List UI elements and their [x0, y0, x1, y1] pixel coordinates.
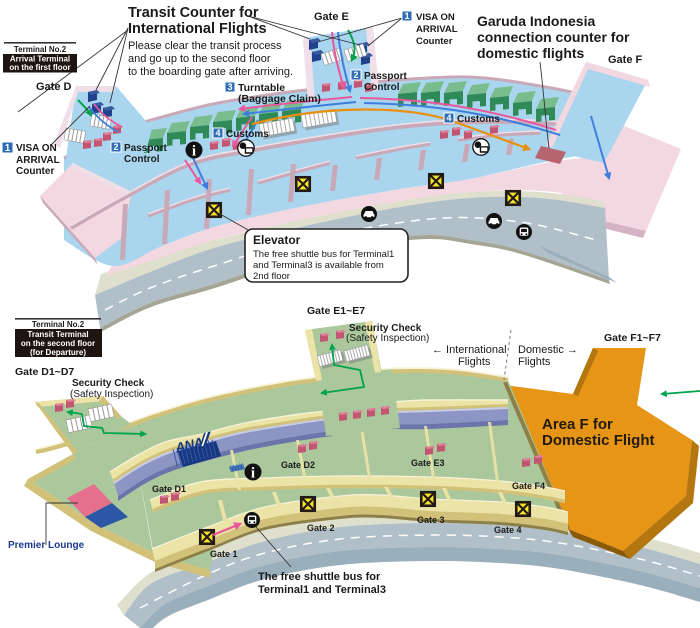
svg-text:Terminal No.2: Terminal No.2 — [32, 320, 85, 329]
svg-text:The free shuttle bus for: The free shuttle bus for — [258, 571, 381, 583]
svg-text:Counter: Counter — [416, 36, 453, 47]
svg-text:Flights: Flights — [518, 356, 551, 368]
svg-text:(for Departure): (for Departure) — [30, 348, 86, 357]
svg-text:Gate 4: Gate 4 — [494, 525, 522, 535]
svg-text:2: 2 — [353, 70, 358, 80]
svg-text:domestic flights: domestic flights — [477, 45, 585, 61]
svg-text:and go up to the second floor: and go up to the second floor — [128, 53, 271, 65]
svg-text:Counter: Counter — [16, 166, 54, 177]
svg-text:(Safety Inspection): (Safety Inspection) — [346, 333, 429, 344]
svg-text:Terminal1 and Terminal3: Terminal1 and Terminal3 — [258, 584, 386, 596]
svg-text:(Baggage Claim): (Baggage Claim) — [238, 93, 321, 105]
svg-text:Domestic Flight: Domestic Flight — [542, 432, 655, 449]
svg-text:Gate D2: Gate D2 — [281, 460, 315, 470]
svg-text:Passport: Passport — [364, 71, 407, 82]
svg-text:Gate D: Gate D — [36, 81, 72, 93]
svg-text:Gate E: Gate E — [314, 11, 349, 23]
svg-text:(Safety Inspection): (Safety Inspection) — [70, 389, 153, 400]
svg-text:Customs: Customs — [226, 129, 269, 140]
svg-text:Gate 2: Gate 2 — [307, 523, 335, 533]
svg-text:1: 1 — [5, 143, 11, 154]
svg-text:Transit Terminal: Transit Terminal — [27, 330, 88, 339]
svg-text:ARRIVAL: ARRIVAL — [16, 155, 60, 166]
svg-text:1: 1 — [404, 11, 409, 21]
svg-text:VISA ON: VISA ON — [416, 12, 455, 23]
svg-text:Gate E3: Gate E3 — [411, 458, 445, 468]
svg-text:Please clear the transit proce: Please clear the transit process — [128, 40, 282, 52]
svg-text:2: 2 — [113, 142, 118, 152]
svg-text:Gate F: Gate F — [608, 54, 643, 66]
svg-text:4: 4 — [215, 128, 220, 138]
svg-text:3: 3 — [227, 82, 232, 92]
svg-text:to the boarding gate after arr: to the boarding gate after arriving. — [128, 66, 293, 78]
svg-text:and Terminal3 is available fro: and Terminal3 is available from — [253, 260, 384, 271]
svg-text:Terminal No.2: Terminal No.2 — [14, 45, 67, 54]
svg-text:Gate 1: Gate 1 — [210, 549, 238, 559]
svg-text:Gate E1~E7: Gate E1~E7 — [307, 305, 365, 317]
svg-text:Gate D1~D7: Gate D1~D7 — [15, 366, 74, 378]
svg-text:Garuda Indonesia: Garuda Indonesia — [477, 13, 595, 29]
svg-text:Domestic →: Domestic → — [518, 344, 578, 356]
svg-text:Gate F1~F7: Gate F1~F7 — [604, 332, 661, 344]
svg-text:on the second floor: on the second floor — [21, 339, 95, 348]
svg-text:connection counter for: connection counter for — [477, 29, 630, 45]
svg-text:← International: ← International — [432, 344, 507, 356]
svg-text:Gate D1: Gate D1 — [152, 484, 186, 494]
svg-text:i: i — [251, 465, 255, 481]
svg-text:VISA ON: VISA ON — [16, 143, 57, 154]
svg-text:International Flights: International Flights — [128, 21, 267, 37]
svg-text:Flights: Flights — [458, 356, 491, 368]
svg-text:Elevator: Elevator — [253, 233, 301, 247]
svg-text:Control: Control — [364, 82, 400, 93]
svg-text:4: 4 — [446, 113, 451, 123]
svg-text:Gate F4: Gate F4 — [512, 481, 545, 491]
svg-text:Security Check: Security Check — [72, 378, 145, 389]
svg-text:i: i — [192, 143, 196, 159]
svg-text:ARRIVAL: ARRIVAL — [416, 24, 458, 35]
svg-text:Passport: Passport — [124, 143, 167, 154]
svg-text:Area F for: Area F for — [542, 416, 613, 433]
svg-text:The free shuttle bus for Termi: The free shuttle bus for Terminal1 — [253, 249, 394, 260]
svg-text:2nd floor: 2nd floor — [253, 271, 290, 282]
svg-text:Premier Lounge: Premier Lounge — [8, 540, 85, 551]
svg-text:Gate 3: Gate 3 — [417, 515, 445, 525]
svg-text:on the first floor: on the first floor — [9, 63, 70, 72]
svg-text:Control: Control — [124, 154, 160, 165]
svg-text:Transit Counter for: Transit Counter for — [128, 5, 259, 21]
svg-text:Customs: Customs — [457, 114, 500, 125]
